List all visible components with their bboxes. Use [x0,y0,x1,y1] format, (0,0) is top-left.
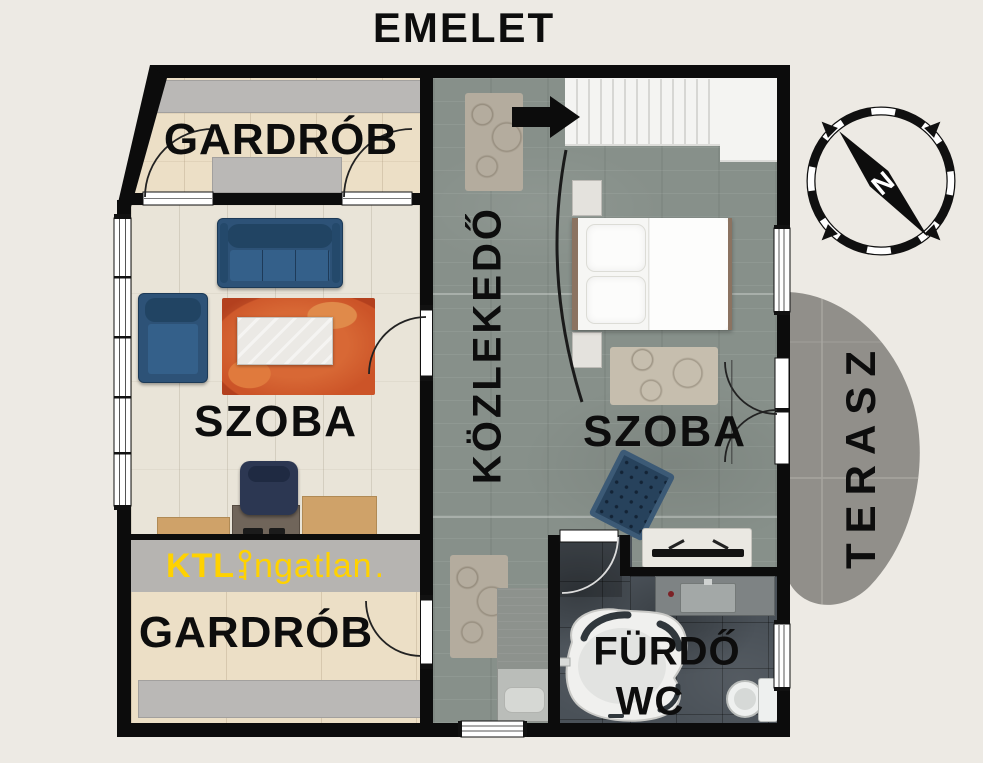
stair-landing [720,78,777,162]
wall-bathroom-left [548,535,560,723]
logo-text-rest: ngatlan [254,547,373,586]
wall-diagonal [117,65,167,207]
wall-bathroom-top [628,567,777,576]
compass-icon: N [796,96,966,266]
living-room-label: SZOBA [194,397,358,447]
staircase [565,78,777,162]
wardrobe-bottom-label: GARDRÓB [139,608,373,658]
wc-label: WC [616,680,685,725]
key-icon [237,548,252,584]
wall-top [150,65,790,78]
brand-logo: KTL ngatlan. [131,540,420,592]
bedroom-label: SZOBA [583,407,747,457]
window-bathroom-right [774,620,790,691]
hallway-label: KÖZLEKEDŐ [466,206,511,484]
floor-plan-canvas: EMELET [0,0,983,763]
window-living-left [114,214,131,510]
door-living-room [369,305,433,381]
window-bedroom-right [774,225,790,315]
door-bathroom [560,530,618,593]
bathroom-label: FÜRDŐ [593,630,740,675]
wall-bottom [117,723,790,737]
door-wardrobe-bottom [366,595,433,669]
hall-walk-arc [557,150,582,402]
window-hall-bottom [458,721,527,737]
logo-text-bold: KTL [166,547,235,586]
logo-period: . [375,547,385,586]
wardrobe-top-label: GARDRÓB [164,115,398,165]
terrace-label: TERASZ [837,341,885,569]
compass-needle: N [830,123,937,244]
